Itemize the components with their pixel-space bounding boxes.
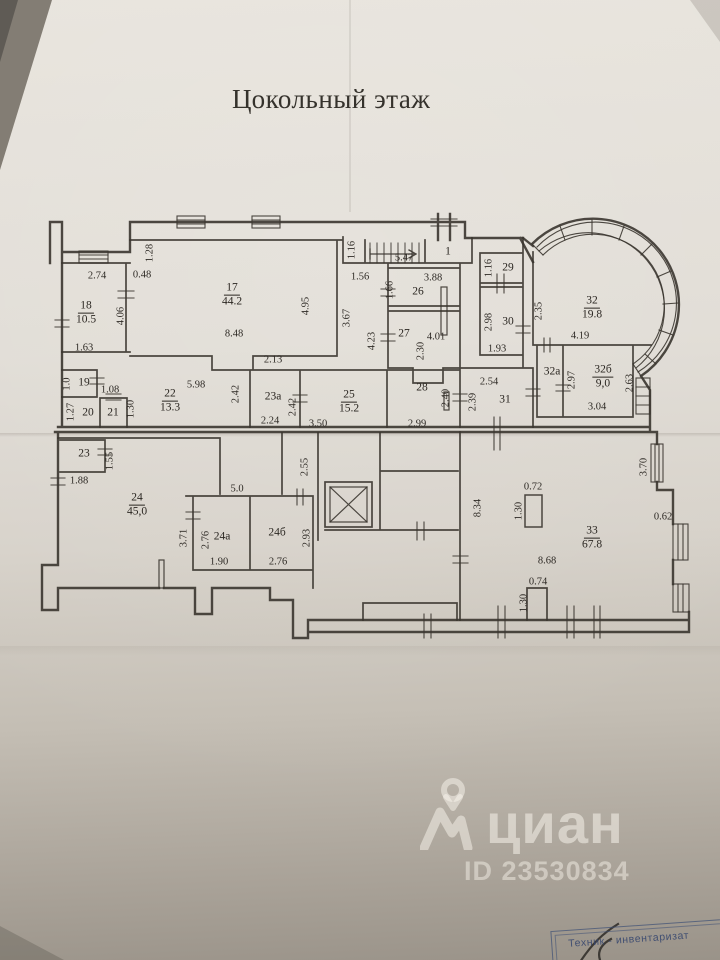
dim-label: 1.16 xyxy=(484,259,495,277)
dim-label: 2.97 xyxy=(567,371,578,389)
dim-label: 1.30 xyxy=(514,502,525,520)
dim-label: 1.27 xyxy=(66,403,77,421)
watermark-brand: циан xyxy=(486,798,624,850)
dim-label: 1.88 xyxy=(70,476,88,487)
dim-label: 1.0 xyxy=(62,377,73,390)
room-label: 28 xyxy=(416,382,428,395)
room-label: 32б9,0 xyxy=(592,364,613,391)
dim-label: 1.08 xyxy=(101,385,119,396)
dim-label: 5.47 xyxy=(395,253,413,264)
dim-label: 2.99 xyxy=(408,419,426,430)
room-label: 32а xyxy=(544,366,561,379)
dim-label: 2.98 xyxy=(484,313,495,331)
dim-label: 8.48 xyxy=(225,329,243,340)
room-label: 2445,0 xyxy=(127,492,147,519)
dim-label: 2.35 xyxy=(534,302,545,320)
dim-label: 1.93 xyxy=(488,344,506,355)
cian-pin-icon xyxy=(420,778,474,850)
room-label: 30 xyxy=(502,316,514,329)
room-label: 27 xyxy=(398,328,410,341)
dim-label: 2.76 xyxy=(201,531,212,549)
dim-label: 1.90 xyxy=(210,557,228,568)
room-label: 24а xyxy=(214,531,231,544)
room-label: 1810.5 xyxy=(76,300,96,327)
dim-label: 3.88 xyxy=(424,273,442,284)
dim-label: 4.95 xyxy=(301,297,312,315)
dim-label: 1.66 xyxy=(385,281,396,299)
dim-label: 2.42 xyxy=(288,398,299,416)
watermark-id: ID 23530834 xyxy=(464,856,630,887)
dim-label: 0.74 xyxy=(529,577,547,588)
dim-label: 1.56 xyxy=(351,272,369,283)
dim-label: 8.34 xyxy=(473,499,484,517)
room-label: 3219.8 xyxy=(582,295,602,322)
dim-label: 1.28 xyxy=(145,244,156,262)
dim-label: 2.54 xyxy=(480,377,498,388)
dim-label: 1.55 xyxy=(105,452,116,470)
room-label: 23а xyxy=(265,391,282,404)
dim-label: 4.23 xyxy=(367,332,378,350)
dim-label: 1.30 xyxy=(519,594,530,612)
room-label: 29 xyxy=(502,262,514,275)
dim-label: 2.74 xyxy=(88,271,106,282)
dim-label: 3.50 xyxy=(309,419,327,430)
dim-label: 2.55 xyxy=(300,458,311,476)
dim-label: 4.01 xyxy=(427,332,445,343)
dim-label: 2.39 xyxy=(468,393,479,411)
dim-label: 2.30 xyxy=(416,342,427,360)
room-label: 20 xyxy=(82,407,94,420)
dim-label: 0.62 xyxy=(654,512,672,523)
dim-label: 2.76 xyxy=(269,557,287,568)
floorplan-photo: Цокольный этаж xyxy=(0,0,720,960)
dim-label: 0.72 xyxy=(524,482,542,493)
dim-label: 1.63 xyxy=(75,343,93,354)
dim-label: 3.04 xyxy=(588,402,606,413)
watermark: циан ID 23530834 xyxy=(420,778,630,887)
room-label: 23 xyxy=(78,448,90,461)
dim-label: 3.71 xyxy=(179,529,190,547)
room-label: 3367.8 xyxy=(582,525,602,552)
room-label: 26 xyxy=(412,286,424,299)
dim-label: 3.70 xyxy=(639,458,650,476)
dim-label: 2.42 xyxy=(231,385,242,403)
dim-label: 2.24 xyxy=(261,416,279,427)
room-label: 24б xyxy=(268,527,285,540)
room-label: 19 xyxy=(78,377,90,390)
dim-label: 4.19 xyxy=(571,331,589,342)
dim-label: 8.68 xyxy=(538,556,556,567)
dim-label: 1.30 xyxy=(126,400,137,418)
dim-label: 5.0 xyxy=(230,484,243,495)
room-label: 2515.2 xyxy=(339,389,359,416)
room-label: 21 xyxy=(107,407,119,420)
dim-label: 0.48 xyxy=(133,270,151,281)
dim-label: 2.13 xyxy=(264,355,282,366)
dim-label: 1.16 xyxy=(347,241,358,259)
dim-label: 2.93 xyxy=(302,529,313,547)
dim-label: 2.40 xyxy=(441,389,452,407)
room-label: 1744.2 xyxy=(222,282,242,309)
dim-label: 3.67 xyxy=(342,309,353,327)
room-label: 2213.3 xyxy=(160,388,180,415)
room-label: 31 xyxy=(499,394,511,407)
dim-label: 2.63 xyxy=(625,374,636,392)
dim-label: 5.98 xyxy=(187,380,205,391)
dim-label: 4.06 xyxy=(116,307,127,325)
room-label: 1 xyxy=(445,246,451,259)
